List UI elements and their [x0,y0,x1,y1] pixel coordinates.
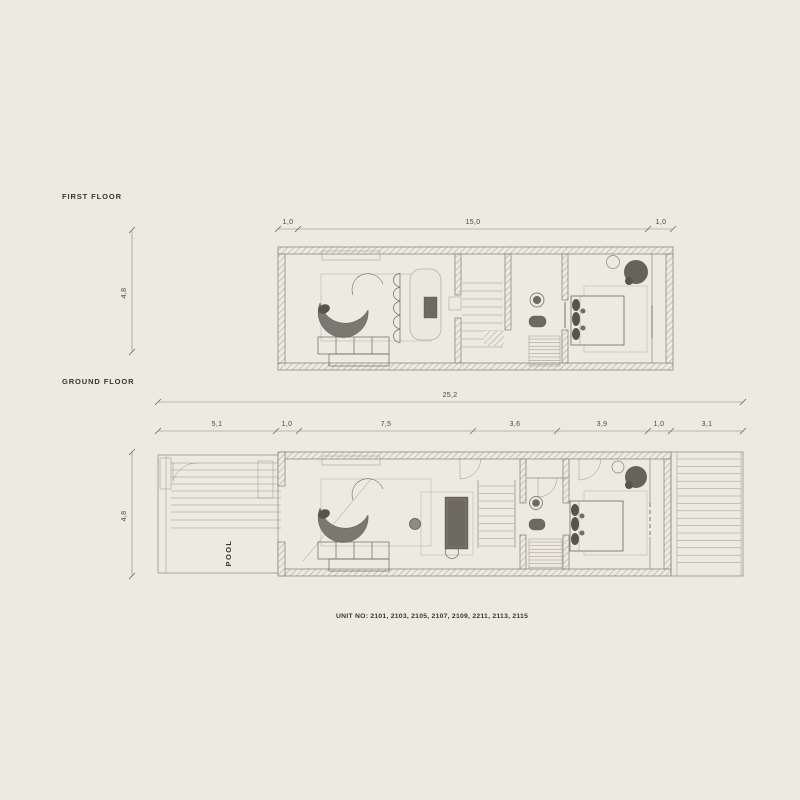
door-swing [460,458,481,479]
armchair [351,477,384,504]
plant-leaf [625,277,633,285]
sectional-sofa [318,542,389,571]
deck-boards [677,459,741,563]
dim-label: 1,0 [654,421,665,428]
living-room [317,456,431,571]
dim-label: 5,1 [212,421,223,428]
pool-terrace: POOL [158,455,281,573]
closet [529,539,562,569]
door-swing [579,458,601,480]
closet-slats [529,339,560,364]
ground-floor-plan: POOL [158,452,743,576]
door-swing [538,478,557,497]
side-table [612,461,624,473]
bedroom [570,458,647,555]
toilet-seat [533,500,540,507]
toilet-seat [533,296,541,304]
stair-treads [479,486,514,546]
dim-label: 1,0 [283,219,294,226]
deck-boards [171,463,281,512]
dim-label: 1,0 [282,421,293,428]
plant-leaf [625,481,633,489]
dim-label: 3,1 [702,421,713,428]
sink [529,316,546,327]
dim-label: 25,2 [443,392,458,399]
dim-label: 1,0 [656,219,667,226]
bathroom [529,478,562,569]
dining-table [445,497,468,549]
door-swing [173,463,198,481]
bedroom [571,256,648,353]
staircase [462,283,504,347]
plans-drawing: 1,0 15,0 1,0 4,8 [0,0,800,800]
closet-slats [529,542,562,567]
bathroom [529,293,560,366]
ground-floor-dimensions: 25,2 5,1 1,0 7,5 3,6 3,9 1,0 3,1 4,8 [121,392,746,579]
dining-chairs [394,274,401,343]
open-sliding-door [303,479,371,561]
sink [529,519,545,530]
plant [410,519,421,530]
floor-plan-sheet: FIRST FLOOR GROUND FLOOR UNIT NO: 2101, … [0,0,800,800]
living-room [317,251,441,366]
dim-label: 15,0 [466,219,481,226]
dim-label: 4,8 [121,288,128,299]
side-table [607,256,620,269]
right-deck [671,452,743,576]
planter [160,458,171,489]
closet [529,336,560,366]
dim-label: 7,5 [381,421,392,428]
sectional-sofa [318,337,389,366]
armchair [351,272,384,299]
pool-steps [171,520,281,528]
stair-landing [484,331,504,346]
dim-label: 3,6 [510,421,521,428]
kitchen-island [410,269,441,340]
pool-label: POOL [224,540,233,567]
dim-label: 4,8 [121,511,128,522]
planter [258,461,273,498]
dim-label: 3,9 [597,421,608,428]
dining-area [410,492,474,559]
first-floor-plan [278,247,673,370]
